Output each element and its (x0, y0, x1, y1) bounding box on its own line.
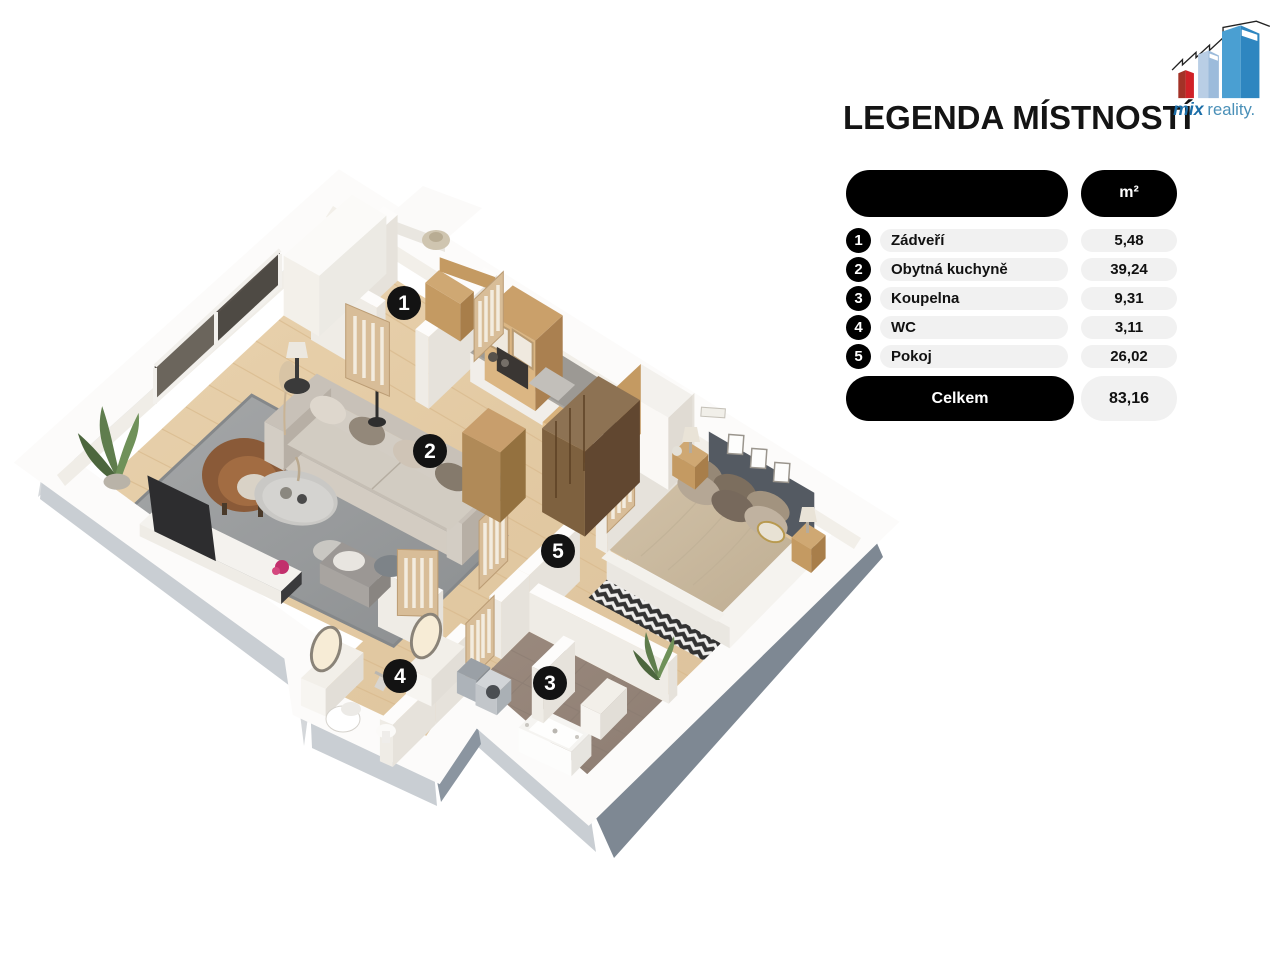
svg-text:reality.: reality. (1207, 100, 1255, 119)
svg-text:4: 4 (394, 665, 406, 688)
svg-text:2: 2 (424, 440, 436, 463)
svg-text:3: 3 (544, 672, 556, 695)
svg-text:1: 1 (398, 292, 410, 315)
svg-text:5: 5 (552, 540, 564, 563)
svg-text:mix: mix (1173, 99, 1205, 119)
